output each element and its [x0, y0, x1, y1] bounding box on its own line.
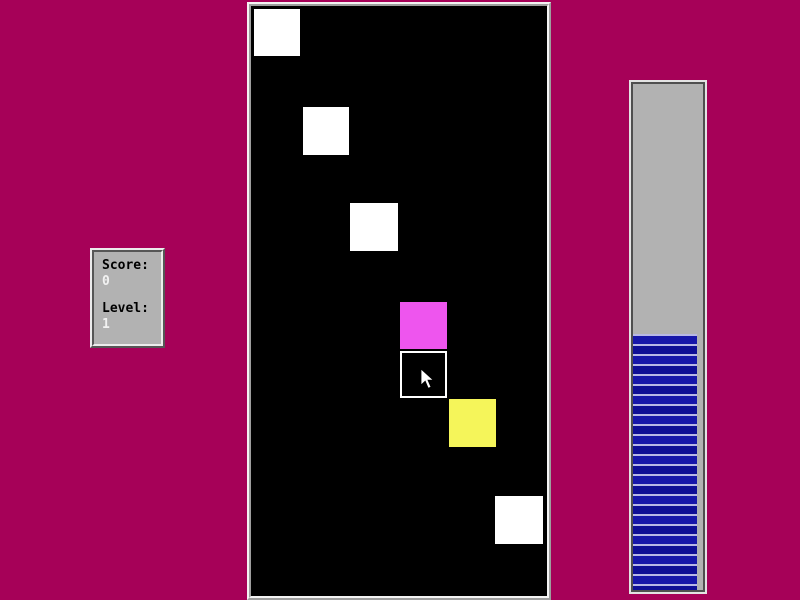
- play-field: [249, 4, 549, 598]
- score-value: 0: [102, 274, 161, 290]
- score-panel: Score: 0 Level: 1: [90, 248, 165, 348]
- game-square[interactable]: [350, 203, 398, 251]
- game-square[interactable]: [495, 496, 543, 544]
- progress-fill: [633, 334, 697, 590]
- score-label: Score:: [102, 258, 161, 274]
- level-label: Level:: [102, 301, 161, 317]
- selected-game-square[interactable]: [400, 351, 447, 398]
- game-square[interactable]: [303, 107, 349, 155]
- progress-trough: [631, 82, 705, 592]
- play-field-frame: [247, 2, 551, 600]
- level-value: 1: [102, 317, 161, 333]
- game-square[interactable]: [400, 302, 447, 349]
- game-square[interactable]: [254, 9, 300, 56]
- panel-spacer: [102, 290, 161, 301]
- level-progress-bar: [629, 80, 707, 594]
- game-desktop: { "app": { "background_color": "#a60158"…: [0, 0, 800, 600]
- game-square[interactable]: [449, 399, 496, 447]
- score-panel-body: Score: 0 Level: 1: [92, 250, 163, 346]
